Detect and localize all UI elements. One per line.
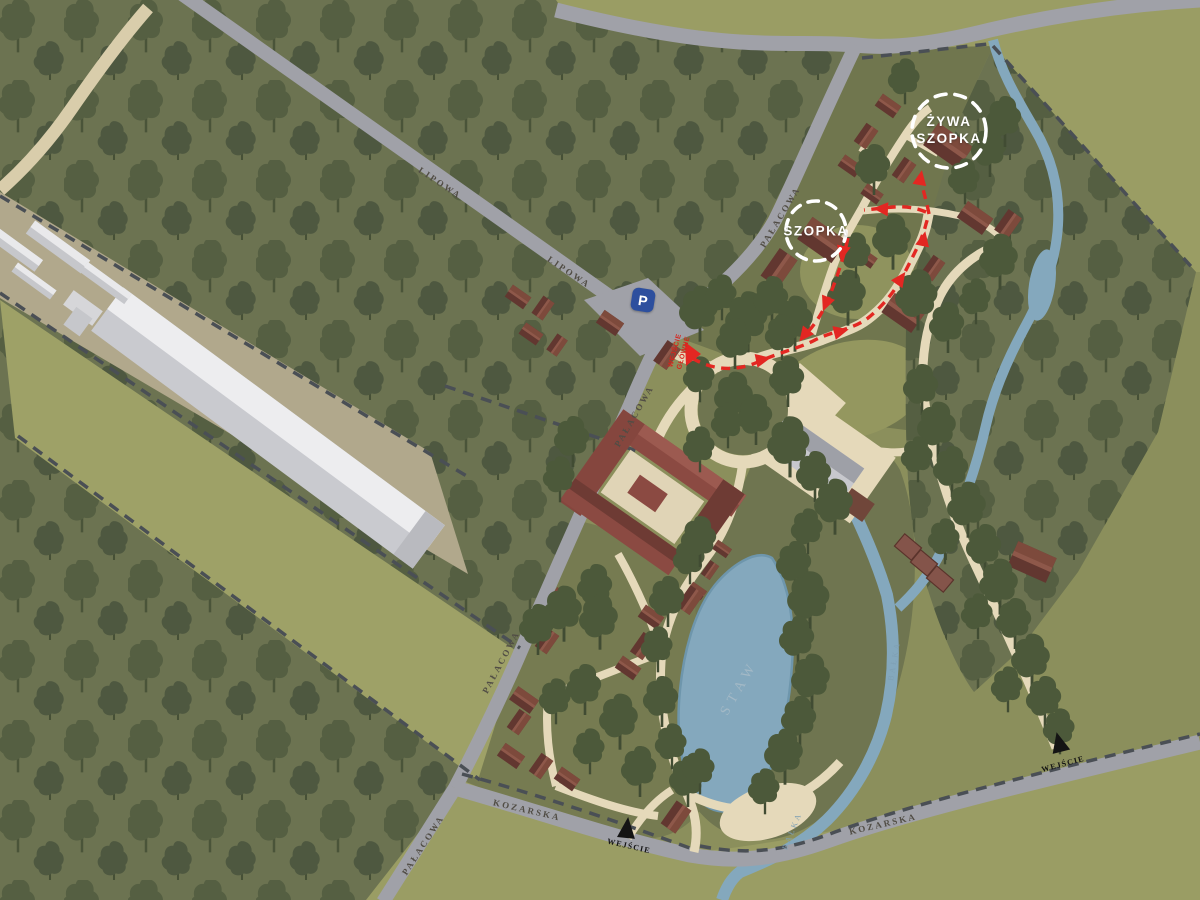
parking-letter: P	[637, 291, 649, 308]
parking-icon: P	[630, 287, 656, 313]
park-map: LIPOWA LIPOWA PAŁACOWA PAŁACOWA PAŁACOWA…	[0, 0, 1200, 900]
park-map-art	[0, 0, 1200, 900]
